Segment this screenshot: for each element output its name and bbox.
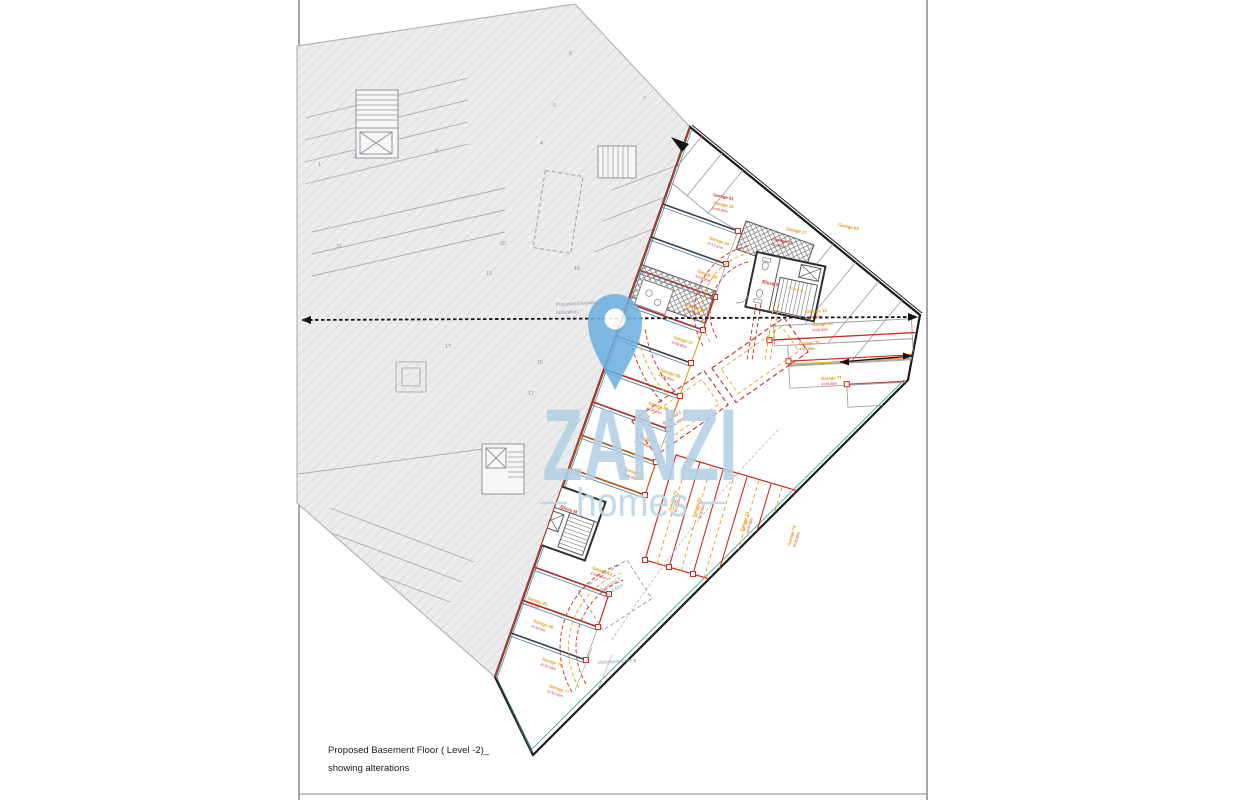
watermark-sub: homes [576,481,688,525]
garage-label: 4×08.85m [812,328,828,333]
existing-stair-a [356,90,398,158]
parking-bay-number: 21 [336,244,342,250]
drawing-sheet: Garage 01Garage 164×08.85mGarage 17Garag… [0,0,1236,800]
garage-label: 4×08.85m [806,315,822,320]
existing-stair-c [482,444,524,494]
parking-bay-number: 3 [435,149,438,155]
garage-label: 4×08.85m [799,347,815,352]
parking-bay-number: 19 [486,271,492,277]
parking-bay-number: 17 [445,344,451,350]
drawing-title-line2: showing alterations [328,763,410,774]
floor-plan-svg: Garage 01Garage 164×08.85mGarage 17Garag… [0,0,1236,800]
existing-stair-b [598,146,636,178]
parking-bay-number: 7 [643,96,646,102]
parking-bay-number: 12 [528,391,534,397]
parking-bay-number: 2 [353,154,356,160]
parking-bay-number: 15 [537,360,543,366]
parking-bay-number: 4 [540,141,543,147]
drawing-title-line1: Proposed Basement Floor ( Level -2)_ [328,745,490,756]
parking-bay-number: 1 [318,162,321,168]
title-block: Proposed Basement Floor ( Level -2)_ sho… [328,745,490,774]
parking-bay-number: 5 [553,103,556,109]
parking-bay-number: 6 [569,51,572,57]
garage-label: 4×08.85m [821,382,837,387]
garage-label: Garage 03 [838,222,860,231]
parking-bay-number: 20 [500,241,506,247]
parking-bay-number: 16 [574,266,580,272]
